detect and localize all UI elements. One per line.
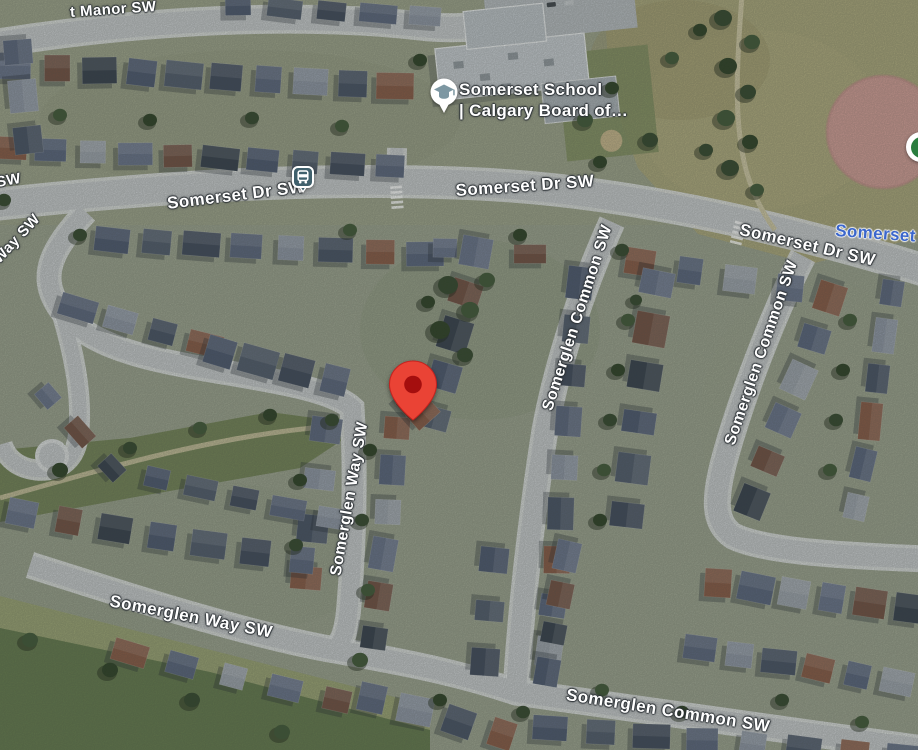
map-pin-icon[interactable] <box>387 358 439 422</box>
graduation-cap-icon[interactable] <box>428 77 460 117</box>
park-icon-inner <box>911 137 918 158</box>
bus-icon[interactable] <box>291 165 315 195</box>
school-name-line2: | Calgary Board of… <box>459 100 628 121</box>
school-poi-label[interactable]: Somerset School | Calgary Board of… <box>459 79 628 121</box>
school-name-line1: Somerset School <box>459 79 628 100</box>
map-canvas[interactable]: t Manor SW SW Way SW Somerset Dr SW Some… <box>0 0 918 750</box>
